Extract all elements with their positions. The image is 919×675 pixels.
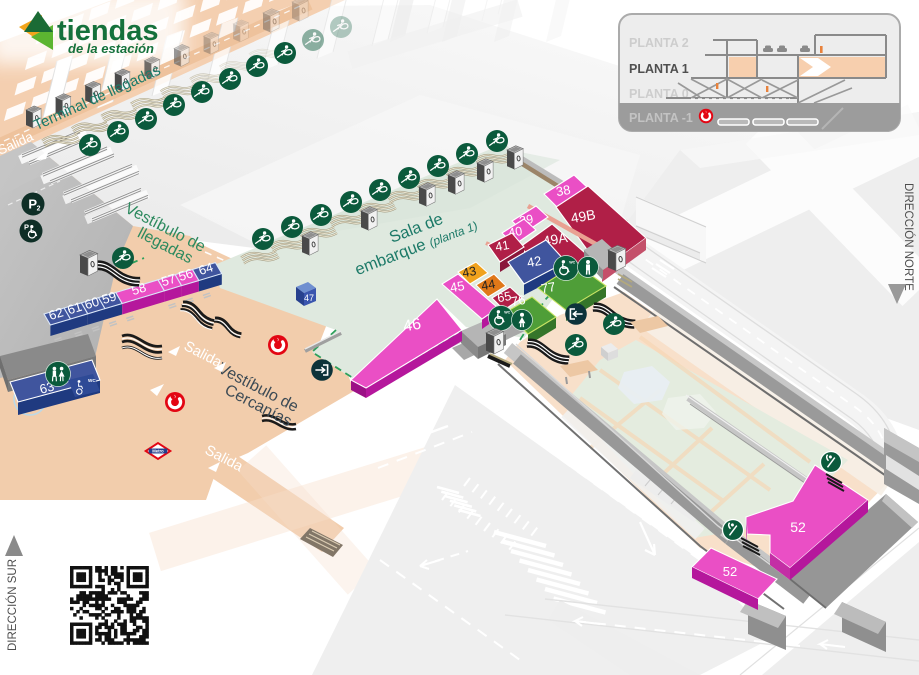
svg-text:47: 47 [304, 293, 314, 303]
svg-text:DIRECCIÓN SUR: DIRECCIÓN SUR [6, 559, 19, 651]
svg-text:41: 41 [494, 238, 510, 254]
svg-text:45: 45 [449, 278, 466, 295]
svg-text:43: 43 [461, 264, 477, 280]
svg-text:44: 44 [480, 277, 496, 293]
svg-text:77: 77 [540, 279, 557, 296]
svg-text:52: 52 [790, 519, 806, 535]
svg-text:de la estación: de la estación [68, 41, 154, 56]
svg-text:76: 76 [510, 292, 527, 309]
svg-text:PLANTA 2: PLANTA 2 [629, 36, 689, 50]
svg-text:52: 52 [723, 564, 737, 579]
svg-text:46: 46 [402, 316, 423, 336]
svg-text:WC: WC [88, 378, 96, 383]
svg-text:PLANTA 1: PLANTA 1 [629, 62, 689, 76]
svg-text:DIRECCIÓN NORTE: DIRECCIÓN NORTE [902, 183, 915, 291]
svg-text:38: 38 [555, 182, 572, 199]
svg-text:42: 42 [526, 253, 543, 270]
svg-text:PLANTA -1: PLANTA -1 [629, 111, 693, 125]
